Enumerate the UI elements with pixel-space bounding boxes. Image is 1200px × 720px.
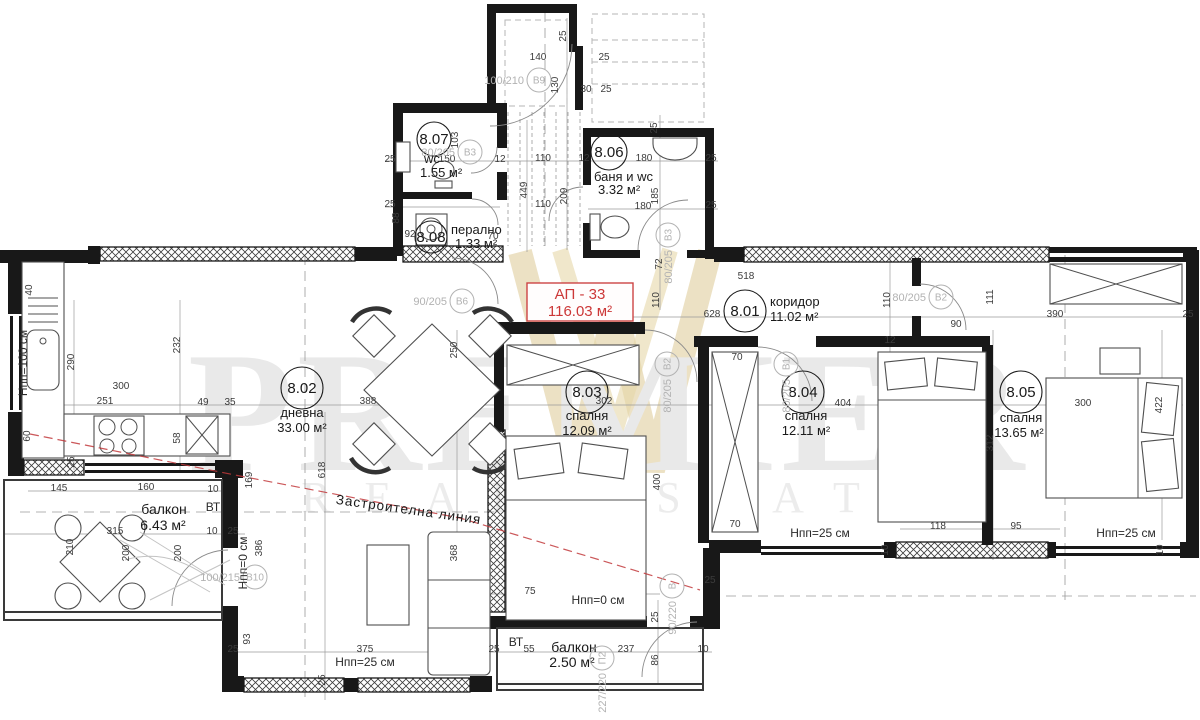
dimension-label: 25: [384, 199, 396, 210]
room-number: 8.02: [287, 380, 316, 397]
room-number: 8.08: [416, 229, 445, 246]
dimension-label: 185: [650, 187, 661, 204]
balcony-chair: [55, 583, 81, 609]
door-tag-code: В2: [663, 357, 674, 370]
dimension-label: 169: [244, 471, 255, 488]
toilet-tank: [435, 181, 452, 188]
room-area: 11.02 м²: [770, 309, 819, 324]
dimension-label: 93: [242, 633, 253, 645]
pillow: [578, 443, 628, 479]
dimension-label: 25: [705, 153, 717, 164]
dimension-label: 25: [384, 154, 396, 165]
dimension-label: 200: [173, 544, 184, 561]
note-label: Нпп=25 см: [335, 655, 395, 669]
dimension-label: 404: [835, 398, 852, 409]
dimension-label: 12: [494, 154, 506, 165]
dimension-label: 10: [880, 544, 891, 556]
dimension-label: 209: [559, 187, 570, 204]
room-name: дневна: [280, 405, 324, 420]
dimension-label: 145: [51, 483, 68, 494]
dimension-label: 400: [652, 473, 663, 490]
apartment-area: 116.03 м²: [548, 303, 612, 320]
balcony-chair: [55, 515, 81, 541]
pillow: [935, 358, 978, 390]
pillow: [885, 358, 928, 390]
dimension-label: 388: [360, 396, 377, 407]
dimension-label: 95: [1010, 521, 1022, 532]
room-area: 12.09 м²: [562, 423, 612, 438]
dimension-label: 60: [22, 430, 33, 442]
dimension-label: 35: [224, 397, 236, 408]
door-tag-code: П2: [598, 651, 609, 664]
toilet-tank: [590, 214, 600, 240]
balcony-name: балкон: [141, 501, 186, 517]
door-tag-code: В9: [533, 76, 546, 87]
dimension-label: 25: [227, 644, 239, 655]
dimension-label: 386: [254, 539, 265, 556]
note-label: Нпп=25 см: [1096, 526, 1156, 540]
door-size-label: 80/205: [892, 292, 926, 304]
apartment-id: АП - 33: [555, 286, 606, 303]
dimension-label: 75: [524, 586, 536, 597]
dimension-label: 40: [24, 284, 35, 296]
dimension-label: 12: [884, 335, 896, 346]
dimension-label: 86: [650, 654, 661, 666]
room-number: 8.06: [594, 144, 623, 161]
dimension-label: 180: [636, 153, 653, 164]
dimension-label: 10: [697, 644, 709, 655]
dimension-label: 312: [985, 434, 996, 451]
door-tag-code: В3: [464, 148, 477, 159]
room-name: спалня: [566, 408, 609, 423]
dimension-label: 25: [598, 52, 610, 63]
dimension-label: 251: [97, 396, 114, 407]
door-size-label: 80/205: [662, 379, 674, 413]
dimension-label: 70: [731, 352, 743, 363]
room-area: 13.65 м²: [994, 425, 1044, 440]
dimension-label: 88: [391, 212, 402, 224]
dimension-label: 422: [1154, 396, 1165, 413]
dimension-label: 70: [729, 519, 741, 530]
toilet: [601, 216, 629, 238]
dimension-label: 368: [449, 544, 460, 561]
door-tag-code: В1: [782, 357, 793, 370]
balcony-chair: [119, 583, 145, 609]
door-tag: В10100/215: [200, 565, 267, 589]
dimension-label: 25: [227, 526, 239, 537]
balcony-name: балкон: [551, 639, 596, 655]
door-size-label: 80/205: [421, 147, 455, 159]
dimension-label: 10: [207, 484, 219, 495]
door-tag-code: В2: [935, 293, 948, 304]
room-name: спалня: [1000, 410, 1043, 425]
door-size-label: 100/215: [200, 572, 240, 584]
door-size-label: 100/210: [484, 75, 524, 87]
dimension-label: 300: [1075, 398, 1092, 409]
door-size-label: 80/205: [781, 379, 793, 413]
dimension-label: 12: [578, 153, 590, 164]
dimension-label: 55: [523, 644, 535, 655]
coffee-table: [367, 545, 409, 625]
dimension-label: 118: [930, 521, 946, 532]
room-area: 33.00 м²: [277, 420, 327, 435]
nightstand: [1100, 348, 1140, 374]
dimension-label: 25: [317, 674, 328, 686]
door-size-label: 90/220: [667, 601, 679, 635]
dimension-label: 449: [519, 181, 530, 198]
dimension-label: 92: [404, 229, 416, 240]
dimension-label: 25: [488, 644, 500, 655]
dimension-label: 232: [172, 336, 183, 353]
dimension-label: 111: [985, 289, 996, 305]
dimension-label: 160: [138, 482, 155, 493]
door-tag: В280/205: [892, 285, 953, 309]
door-tag: В690/205: [413, 289, 474, 313]
note-label: ВТ: [206, 500, 221, 514]
door-tag-code: В6: [456, 297, 469, 308]
dimension-label: 110: [535, 199, 551, 210]
room-number: 8.01: [730, 303, 759, 320]
dimension-label: 130: [550, 76, 561, 93]
note-label: Нпп=0 см: [572, 593, 625, 607]
dimension-label: 30: [580, 84, 592, 95]
balcony-label: балкон6.43 м²: [140, 501, 186, 533]
dimension-label: 25: [1182, 309, 1194, 320]
room-name: коридор: [770, 294, 820, 309]
room-label: 8.06баня и wc3.32 м²: [591, 134, 653, 197]
door-tag-code: В3: [664, 228, 675, 241]
dimension-label: 49: [197, 397, 209, 408]
dimension-label: 10: [1155, 544, 1166, 556]
door-size-label: 90/205: [413, 296, 447, 308]
dimension-label: 110: [882, 292, 893, 308]
dimension-label: 90: [950, 319, 962, 330]
dimension-label: 302: [596, 396, 613, 407]
dimension-label: 25: [558, 30, 569, 42]
balcony-area: 6.43 м²: [140, 517, 186, 533]
dimension-label: 618: [317, 461, 328, 478]
dimension-label: 25: [704, 575, 716, 586]
dimension-label: 315: [107, 526, 124, 537]
room-area: 3.32 м²: [598, 182, 641, 197]
pillow: [1141, 438, 1178, 491]
apartment-id-box: АП - 33 116.03 м²: [527, 283, 633, 321]
dimension-label: 390: [1047, 309, 1064, 320]
room-area: 1.55 м²: [420, 165, 463, 180]
dimension-label: 25: [600, 84, 612, 95]
dimension-label: 180: [635, 201, 652, 212]
dimension-label: 628: [704, 309, 721, 320]
dimension-label: 25: [650, 611, 661, 623]
pillow: [514, 443, 564, 479]
dimension-label: 250: [449, 341, 460, 358]
dimension-label: 140: [530, 52, 547, 63]
dimension-label: 237: [618, 644, 635, 655]
floor-plan: PREMIER REAL ESTATE: [0, 0, 1200, 720]
door-tag: В90/220: [660, 574, 684, 635]
room-area: 12.11 м²: [782, 423, 831, 438]
dimension-label: 518: [738, 271, 755, 282]
kitchen-sink: [27, 330, 59, 390]
dimension-label: 70: [487, 231, 499, 242]
dimension-label: 10: [206, 526, 218, 537]
dimension-label: 200: [121, 544, 132, 561]
room-number: 8.05: [1006, 384, 1035, 401]
dimension-label: 110: [535, 153, 551, 164]
note-label: Нпп=0 см: [236, 537, 250, 590]
dimension-label: 58: [172, 432, 183, 444]
dimension-label: 25: [705, 200, 717, 211]
door-tag-code: В: [668, 582, 679, 589]
floor-plan-canvas: PREMIER REAL ESTATE: [0, 0, 1200, 720]
balcony-area: 2.50 м²: [549, 654, 595, 670]
dimension-label: 290: [66, 353, 77, 370]
bathroom-sink: [653, 138, 697, 160]
note-label: ВТ: [509, 635, 524, 649]
note-label: Нпп=100 см: [16, 330, 30, 396]
door-size-label: 80/205: [663, 250, 675, 284]
wc-sink: [396, 142, 410, 172]
dimension-label: 210: [65, 538, 76, 555]
dimension-label: 375: [357, 644, 374, 655]
balcony-label: балкон2.50 м²: [549, 639, 596, 670]
dimension-label: 25: [649, 122, 660, 134]
dimension-label: 25: [66, 456, 77, 468]
note-label: Нпп=25 см: [790, 526, 850, 540]
dimension-label: 110: [651, 292, 662, 308]
room-number: 8.07: [419, 131, 448, 148]
door-size-label: 227/220: [597, 673, 609, 713]
dimension-label: 300: [113, 381, 130, 392]
